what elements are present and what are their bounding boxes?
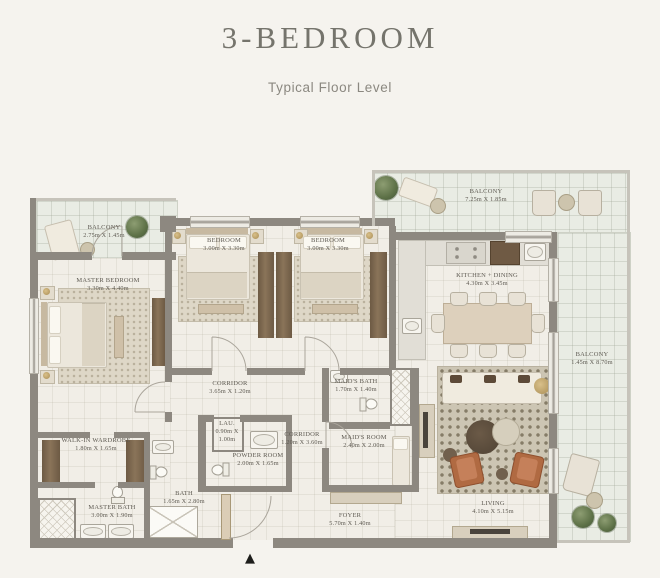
- room-label-balcony-tl: BALCONY 2.75m X 1.45m: [83, 224, 124, 240]
- room-dims: 3.00m X 1.90m: [88, 512, 135, 520]
- room-name: POWDER ROOM: [233, 452, 284, 460]
- room-name: KITCHEN + DINING: [456, 272, 518, 280]
- room-name: MASTER BATH: [88, 504, 135, 512]
- room-label-balcony-right: BALCONY 1.45m X 8.70m: [571, 351, 612, 367]
- room-name: BEDROOM: [203, 237, 244, 245]
- room-label-corridor-2: CORRIDOR 1.20m X 3.60m: [281, 431, 322, 447]
- room-dims: 2.40m X 2.00m: [341, 442, 386, 450]
- room-name: MAID'S ROOM: [341, 434, 386, 442]
- room-name: FOYER: [329, 512, 370, 520]
- room-name: BALCONY: [571, 351, 612, 359]
- room-label-bedroom-1: BEDROOM 3.00m X 3.30m: [203, 237, 244, 253]
- room-label-master-bath: MASTER BATH 3.00m X 1.90m: [88, 504, 135, 520]
- room-label-living: LIVING 4.10m X 5.15m: [472, 500, 513, 516]
- room-label-bath: BATH 1.65m X 2.80m: [163, 490, 204, 506]
- room-name: LAU.: [212, 420, 242, 428]
- room-dims: 1.20m X 3.60m: [281, 439, 322, 447]
- room-label-foyer: FOYER 5.70m X 1.40m: [329, 512, 370, 528]
- room-dims: 3.00m X 3.30m: [307, 245, 348, 253]
- room-label-maids-room: MAID'S ROOM 2.40m X 2.00m: [341, 434, 386, 450]
- room-label-kitchen-dining: KITCHEN + DINING 4.30m X 3.45m: [456, 272, 518, 288]
- room-name: WALK-IN WARDROBE: [62, 437, 131, 445]
- room-dims: 1.45m X 8.70m: [571, 359, 612, 367]
- room-name: MAID'S BATH: [335, 378, 378, 386]
- room-label-master-bedroom: MASTER BEDROOM 3.30m X 4.40m: [76, 277, 139, 293]
- room-dims: 5.70m X 1.40m: [329, 520, 370, 528]
- room-dims: 4.30m X 3.45m: [456, 280, 518, 288]
- room-dims: 0.90m X 1.00m: [212, 428, 242, 444]
- page: { "header": { "title": "3-BEDROOM", "sub…: [0, 0, 660, 578]
- room-label-maids-bath: MAID'S BATH 1.70m X 1.40m: [335, 378, 378, 394]
- room-label-powder-room: POWDER ROOM 2.00m X 1.65m: [233, 452, 284, 468]
- room-label-laundry: LAU. 0.90m X 1.00m: [212, 420, 242, 444]
- room-name: BALCONY: [83, 224, 124, 232]
- room-name: CORRIDOR: [209, 380, 250, 388]
- room-name: BALCONY: [465, 188, 506, 196]
- room-dims: 1.80m X 1.65m: [62, 445, 131, 453]
- room-dims: 1.70m X 1.40m: [335, 386, 378, 394]
- room-dims: 1.65m X 2.80m: [163, 498, 204, 506]
- room-dims: 7.25m X 1.85m: [465, 196, 506, 204]
- floor-plan: ▲ BALCONY 2.75m X 1.45m MASTER BEDROOM 3…: [0, 0, 660, 578]
- room-name: MASTER BEDROOM: [76, 277, 139, 285]
- room-dims: 3.00m X 3.30m: [203, 245, 244, 253]
- room-label-walk-in-wardrobe: WALK-IN WARDROBE 1.80m X 1.65m: [62, 437, 131, 453]
- room-dims: 3.30m X 4.40m: [76, 285, 139, 293]
- room-dims: 3.65m X 1.20m: [209, 388, 250, 396]
- room-name: BATH: [163, 490, 204, 498]
- room-name: BEDROOM: [307, 237, 348, 245]
- room-name: LIVING: [472, 500, 513, 508]
- room-label-balcony-tr: BALCONY 7.25m X 1.85m: [465, 188, 506, 204]
- room-name: CORRIDOR: [281, 431, 322, 439]
- room-label-corridor-1: CORRIDOR 3.65m X 1.20m: [209, 380, 250, 396]
- room-dims: 4.10m X 5.15m: [472, 508, 513, 516]
- room-dims: 2.00m X 1.65m: [233, 460, 284, 468]
- room-label-bedroom-2: BEDROOM 3.00m X 3.30m: [307, 237, 348, 253]
- entry-arrow-icon: ▲: [245, 552, 255, 565]
- room-dims: 2.75m X 1.45m: [83, 232, 124, 240]
